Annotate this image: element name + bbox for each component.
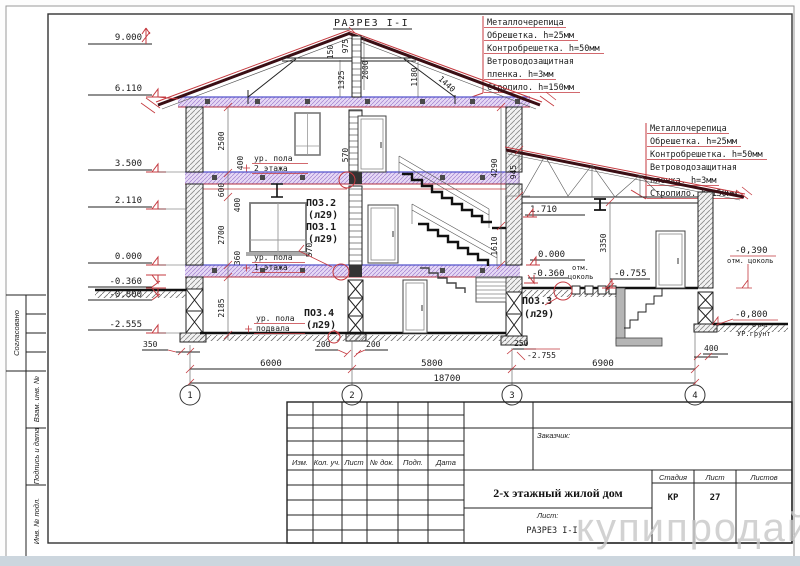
col-data: Дата	[435, 458, 456, 467]
pos1-label: ПОЗ.1	[306, 222, 336, 233]
dim-400r: 400	[704, 344, 719, 353]
spec-line: Металлочерепица	[487, 18, 564, 28]
door-basement	[403, 280, 427, 333]
watermark: купипродай	[576, 506, 800, 550]
document-title: 2-х этажный жилой дом	[493, 486, 622, 500]
spec-line: Контробрешетка. h=50мм	[650, 149, 763, 160]
level-2110: 2.110	[115, 196, 142, 206]
floor1-label1: ур. пола	[254, 253, 293, 262]
door-floor1	[368, 205, 398, 263]
col-list: Лист	[343, 458, 363, 467]
pos3-ref: (л29)	[524, 309, 554, 320]
dim-250: 250	[514, 339, 529, 348]
dim-360: 360	[233, 251, 242, 266]
axis-1: 1	[187, 391, 192, 401]
dim-350: 350	[143, 340, 158, 349]
site-footer-bar	[0, 556, 800, 566]
dim-570b: 570	[341, 148, 350, 163]
sidebar-label-vzam: Взам. инв. №	[32, 376, 41, 422]
dim-2185: 2185	[217, 298, 226, 317]
level-m0390: -0,390	[735, 246, 768, 256]
stage-value: КР	[668, 493, 679, 503]
level-6110: 6.110	[115, 84, 142, 94]
stage-header: Стадия	[659, 473, 687, 482]
dim-150: 150	[326, 45, 335, 60]
dim-1180: 1180	[410, 67, 419, 86]
spec-line: Обрешетка. h=25мм	[650, 136, 737, 147]
sheets-header: Листов	[749, 473, 777, 482]
level-m0800: -0.800	[109, 290, 142, 300]
spec-line: пленка. h=3мм	[487, 70, 554, 80]
dim-4290: 4290	[490, 158, 499, 177]
dim-pit-level: -2.755	[527, 351, 556, 360]
spec-line: Ветроводозащитная	[487, 57, 574, 67]
level-r0: 0.000	[538, 250, 565, 260]
dim-200a: 200	[316, 340, 331, 349]
dim-1325: 1325	[337, 70, 346, 89]
window-floor2	[295, 113, 320, 155]
drawing-title: РАЗРЕЗ I-I	[333, 18, 412, 29]
floorb-label2: подвала	[256, 324, 290, 333]
spec-line: Обрешетка. h=25мм	[487, 30, 574, 41]
sidebar-label-agreed: Согласовано	[12, 310, 21, 356]
customer-label: Заказчик:	[537, 431, 570, 440]
axis-4: 4	[692, 391, 697, 401]
section-title: РАЗРЕЗ I-I	[334, 18, 409, 29]
dim-200b: 200	[366, 340, 381, 349]
axis-2: 2	[349, 391, 354, 401]
list-label: Лист:	[536, 511, 558, 520]
level-m0360: -0.360	[109, 277, 142, 287]
level-9000: 9.000	[115, 33, 142, 43]
level-1710: 1.710	[530, 205, 557, 215]
section-drawing: Согласовано Взам. инв. № Подпись и дата …	[0, 0, 800, 566]
dim-2000: 2000	[361, 60, 370, 79]
dim-2700: 2700	[217, 225, 226, 244]
level-m0755: -0.755	[614, 269, 647, 279]
pos2-ref: (л29)	[308, 210, 338, 221]
pos3-label: ПОЗ.3	[522, 296, 552, 307]
note-cokol: цоколь	[568, 273, 593, 281]
floorb-label1: ур. пола	[256, 314, 295, 323]
pos4-ref: (л29)	[306, 320, 336, 331]
sidebar-label-inv: Инв. № подл.	[32, 498, 41, 545]
spec-line: Ветроводозащитная	[650, 163, 737, 173]
door-floor2	[358, 116, 386, 172]
note-ugrunt: УР.грунт	[737, 330, 771, 338]
col-podp: Подп.	[403, 458, 423, 467]
dim-975: 975	[341, 39, 350, 54]
pos4-label: ПОЗ.4	[304, 308, 334, 319]
spec-line: Контробрешетка. h=50мм	[487, 43, 600, 54]
level-3500: 3.500	[115, 159, 142, 169]
dim-2500: 2500	[217, 131, 226, 150]
note-otm2: отм.	[752, 321, 769, 329]
floor2-label1: ур. пола	[254, 154, 293, 163]
dim-1610: 1610	[490, 236, 499, 255]
level-m2555: -2.555	[109, 320, 142, 330]
dim-600: 600	[217, 183, 226, 198]
blueprint-page: Согласовано Взам. инв. № Подпись и дата …	[0, 0, 800, 566]
dim-18700: 18700	[433, 374, 460, 384]
level-m0800r: -0,800	[735, 310, 768, 320]
dim-3350: 3350	[599, 233, 608, 252]
spec-line: Металлочерепица	[650, 124, 727, 134]
note-otm: отм.	[572, 264, 589, 272]
dim-5800: 5800	[421, 359, 443, 369]
dim-6900: 6900	[592, 359, 614, 369]
note-otm-cokol: отм. цоколь	[727, 257, 773, 265]
dim-945: 945	[509, 165, 518, 180]
sheet-value: 27	[710, 493, 721, 503]
col-koluch: Кол. уч.	[314, 458, 341, 467]
sidebar-label-podpis: Подпись и дата	[32, 428, 41, 485]
pos1-ref: (л29)	[308, 234, 338, 245]
floor2-label2: 2 этажа	[254, 164, 288, 173]
col-izm: Изм.	[292, 458, 308, 467]
pos2-label: ПОЗ.2	[306, 198, 336, 209]
level-0000: 0.000	[115, 252, 142, 262]
window-floor1	[246, 203, 310, 256]
dim-400a: 400	[233, 198, 242, 213]
floor1-label2: 1 этажа	[254, 263, 288, 272]
sheet-header: Лист	[704, 473, 724, 482]
col-ndok: № док.	[370, 458, 394, 467]
dim-6000: 6000	[260, 359, 282, 369]
axis-3: 3	[509, 391, 514, 401]
drawing-name: РАЗРЕЗ I-I	[526, 526, 577, 536]
annex-door	[656, 231, 685, 288]
